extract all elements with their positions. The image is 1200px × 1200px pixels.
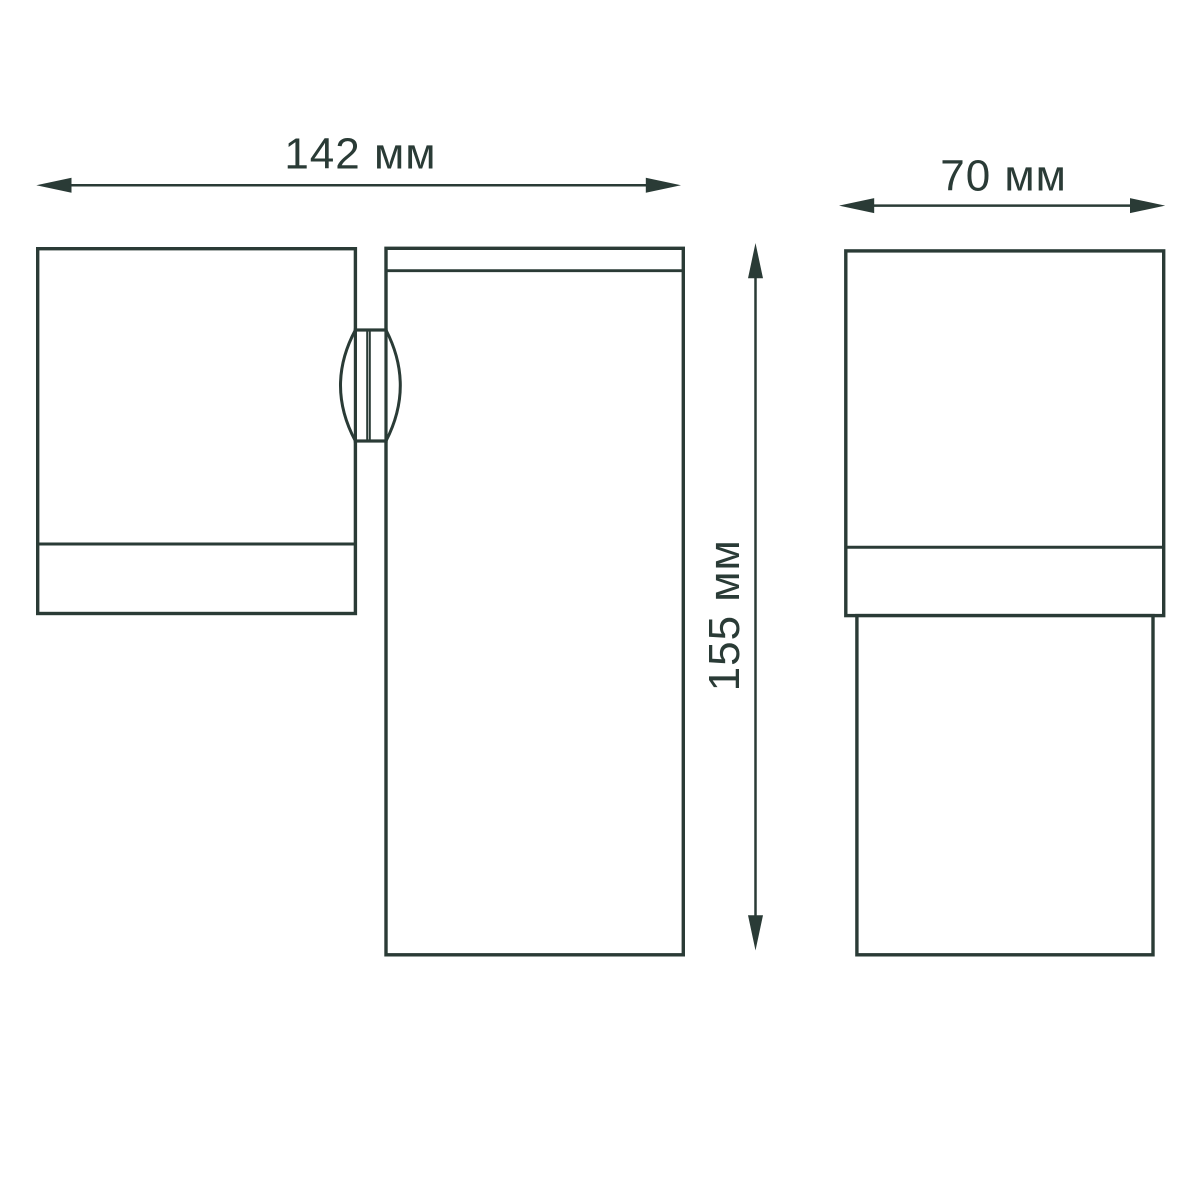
- svg-text:155 мм: 155 мм: [700, 539, 749, 691]
- svg-text:70 мм: 70 мм: [940, 152, 1067, 201]
- svg-text:142 мм: 142 мм: [284, 130, 436, 179]
